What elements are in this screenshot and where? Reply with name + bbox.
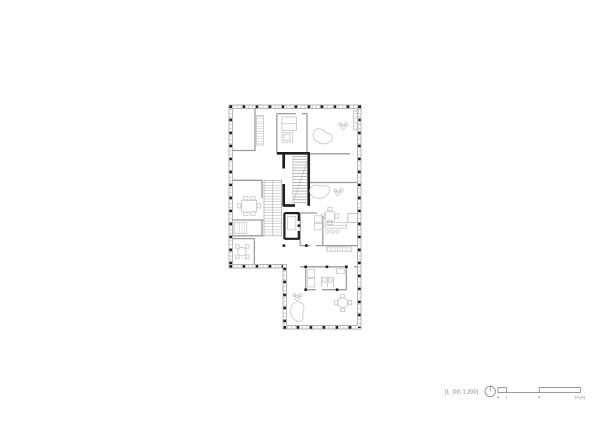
meeting-table (235, 245, 249, 259)
drawing-sheet: [1. OG 1:200] 0 1 5 10 (m) (0, 0, 600, 424)
title-annotation: [1. OG 1:200] 0 1 5 10 (m) (445, 385, 586, 399)
wing-round-table (335, 295, 352, 312)
sofa-bean-top (311, 127, 334, 146)
shelf-top-left (257, 116, 264, 146)
dining-table (238, 197, 261, 216)
scale-bar: 0 1 5 10 (m) (497, 387, 585, 399)
plan-label: [1. OG 1:200] (445, 390, 479, 396)
scale-mark-1: 1 (505, 395, 507, 399)
plant-wing (293, 294, 302, 301)
sofa-bean-wing (289, 301, 306, 323)
secondary-stair (264, 180, 282, 235)
plant-top-right (339, 123, 348, 130)
closet-shelf (234, 223, 247, 234)
elevator (284, 213, 299, 239)
plant-middle-right (334, 189, 343, 196)
scale-mark-5: 5 (538, 395, 540, 399)
elevator-car (287, 216, 295, 229)
sofa-bean-middle (309, 182, 331, 200)
fixtures (282, 117, 347, 287)
north-arrow-icon (485, 385, 495, 396)
floor-plan-drawing: [1. OG 1:200] 0 1 5 10 (m) (0, 0, 600, 424)
interior-walls (233, 109, 358, 290)
counter-strip (327, 247, 352, 251)
scale-mark-0: 0 (497, 395, 499, 399)
scale-mark-10: 10 (m) (575, 395, 586, 399)
